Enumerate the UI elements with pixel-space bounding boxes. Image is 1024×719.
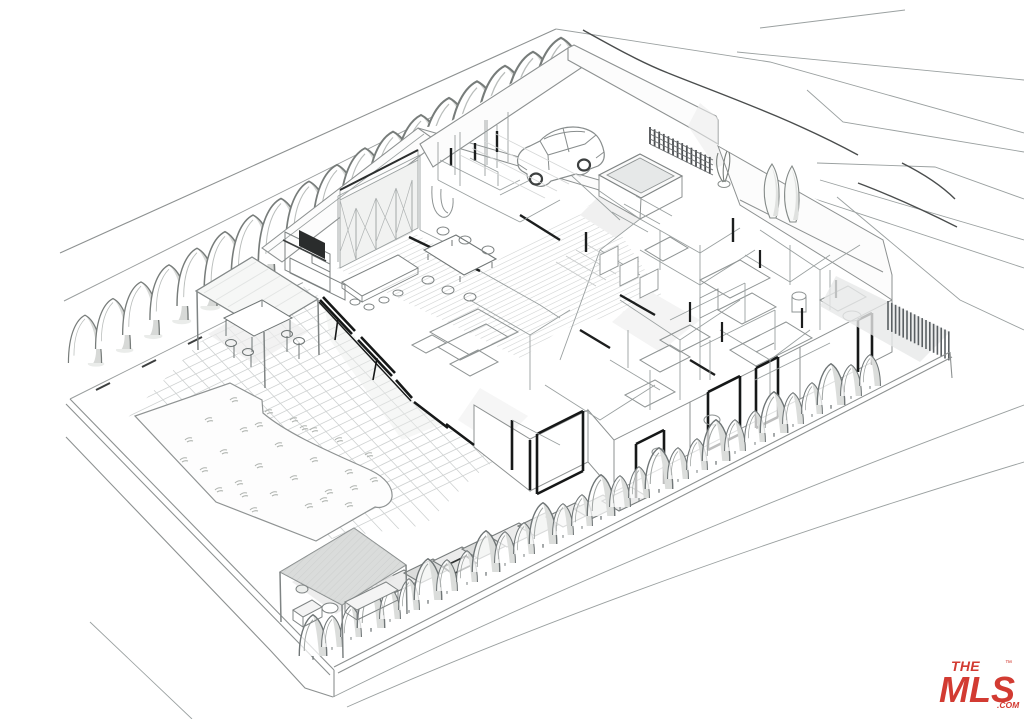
svg-text:™: ™ (1005, 660, 1012, 667)
svg-text:.COM: .COM (997, 700, 1020, 710)
